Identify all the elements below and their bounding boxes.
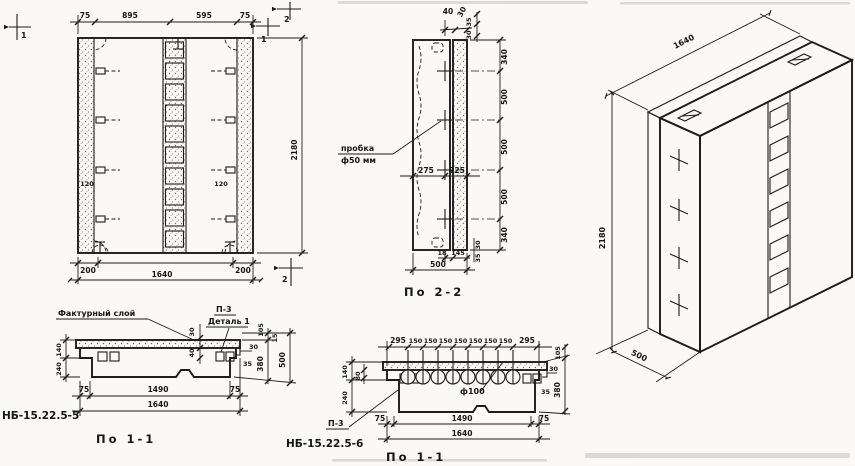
dim-label: 35: [474, 253, 482, 263]
dim-label: 75: [230, 385, 240, 394]
dim-label: 380: [553, 382, 562, 398]
dim-label: 40: [188, 348, 196, 358]
bottom-dim-chain: 75 1490 75 1640: [72, 358, 248, 416]
dim-label: 35: [243, 360, 253, 368]
edge-dims: 30 35 105 380: [539, 344, 570, 415]
top-face: [660, 42, 852, 136]
dim-label: 150: [469, 337, 483, 345]
dim-label: 1640: [672, 33, 696, 51]
dim-label: 500: [500, 139, 509, 155]
dim-label: 35: [541, 388, 551, 396]
dim-label: 240: [55, 362, 63, 376]
view-title: По 1-1: [386, 450, 446, 464]
note-label: П-3: [216, 305, 232, 314]
view-title: По 1-1: [96, 432, 156, 446]
dim-label: 30: [465, 30, 473, 40]
dim-label: 200: [235, 266, 251, 275]
dim-label: 35: [465, 17, 473, 27]
dovetail-strip: [768, 91, 790, 318]
facing-layer: [76, 340, 240, 348]
isometric-view: 1640 2180 500: [596, 13, 852, 382]
dim-label: 1640: [152, 270, 173, 279]
right-rib-texture: [237, 39, 252, 253]
dim-label: 140: [55, 343, 63, 357]
dim-label: 1490: [148, 385, 169, 394]
dim-label: 595: [196, 11, 212, 20]
dim-label: 80: [354, 371, 362, 381]
dim-label: 150: [484, 337, 498, 345]
panel-mark: НБ-15.22.5-5: [2, 410, 79, 422]
section-2-2-view: пробка ф50 мм 40 30 35 30 275 225: [338, 5, 509, 299]
dim-label: 15: [271, 333, 279, 343]
dim-label: 145: [451, 249, 465, 257]
left-rib-texture: [79, 39, 94, 253]
dim-label: 30: [188, 327, 196, 337]
dim-label: 150: [424, 337, 438, 345]
panel-mark: НБ-15.22.5-6: [286, 438, 363, 450]
dim-label: 295: [390, 336, 406, 345]
dim-label: 120: [214, 180, 228, 188]
plug-note: пробка ф50 мм: [338, 121, 441, 165]
front-face: [700, 60, 852, 352]
panel-drawing: 120 120 75 895 595 75 200 200 1640: [0, 0, 855, 466]
note-label: ф100: [460, 387, 485, 396]
depth-dim: 500: [614, 348, 700, 382]
dim-label: 500: [430, 260, 446, 269]
dim-label: 75: [375, 414, 385, 423]
bottom-dims: 18 145 500 30 35: [405, 238, 482, 275]
dim-label: 75: [539, 414, 549, 423]
bottom-dim-chain: 75 1490 75 1640: [375, 414, 550, 443]
mid-dims: 275 225: [400, 166, 480, 179]
dim-label: 75: [240, 11, 250, 20]
dim-label: 150: [409, 337, 423, 345]
section-marks: 1 1 2 2: [9, 2, 303, 286]
dim-label: 240: [341, 391, 349, 405]
void-slots: [98, 352, 234, 361]
left-dim-chain: 140 240 80: [341, 356, 387, 417]
section-mark-label: 1: [21, 31, 27, 40]
front-elevation-view: 120 120 75 895 595 75 200 200 1640: [9, 2, 308, 286]
dim-label: 105: [257, 323, 265, 337]
facing-front-edge: [648, 112, 660, 334]
note-label: Деталь 1: [208, 317, 250, 326]
dim-label: 75: [79, 385, 89, 394]
dim-label: 30: [549, 365, 559, 373]
section-mark-label: 1: [261, 35, 267, 44]
dim-label: 150: [439, 337, 453, 345]
right-dim-chain: 105 15 380 500: [234, 323, 296, 386]
height-dim: 2180: [596, 93, 648, 354]
dim-label: 200: [80, 266, 96, 275]
dim-label: 500: [500, 89, 509, 105]
dim-label: 30: [455, 5, 468, 18]
edge-anchors: 120 120: [80, 68, 235, 222]
top-dims: 40 30 35 30: [440, 5, 480, 42]
dim-label: 295: [519, 336, 535, 345]
scan-noise: [332, 1, 850, 462]
dim-label: 380: [256, 356, 265, 372]
facing-top-edge: [648, 36, 812, 118]
dim-label: 18: [437, 249, 447, 257]
bottom-dim-chain: 200 200 1640: [70, 257, 261, 284]
dim-label: 140: [341, 365, 349, 379]
dim-label: 895: [122, 11, 138, 20]
note-label: Фактурный слой: [58, 309, 135, 318]
dim-label: 2180: [290, 140, 299, 161]
dim-label: 30: [474, 240, 482, 250]
dim-label: 105: [554, 346, 562, 360]
end-face: [660, 118, 700, 352]
section-1-1a-view: Фактурный слой П-3 Деталь 1 30 40 140 24: [2, 305, 296, 446]
facing-layer: [453, 40, 467, 250]
dovetail-key-column: [163, 38, 186, 253]
dim-label: 340: [500, 227, 509, 243]
dim-label: 2180: [598, 226, 607, 249]
view-title: По 2-2: [404, 285, 464, 299]
dim-label: 120: [80, 180, 94, 188]
dim-label: 225: [449, 166, 465, 175]
dim-label: 30: [249, 343, 259, 351]
dim-label: 500: [500, 189, 509, 205]
section-mark-label: 2: [284, 15, 290, 24]
top-dim-chain: 75 895 595 75: [70, 11, 261, 34]
note-label: П-3: [328, 419, 344, 428]
section-1-1b-view: 295 150 150 150 150 150 150 150 295 140 …: [286, 336, 570, 464]
dim-label: 275: [418, 166, 434, 175]
dim-label: 1490: [452, 414, 473, 423]
anchor-crosses: [670, 149, 688, 316]
dim-label: 150: [499, 337, 513, 345]
blueprint-page: 120 120 75 895 595 75 200 200 1640: [0, 0, 855, 466]
dim-label: 340: [500, 49, 509, 65]
section-mark-label: 2: [282, 275, 288, 284]
dim-label: 75: [80, 11, 90, 20]
height-dim: 2180: [257, 35, 308, 256]
dim-label: 1640: [452, 429, 473, 438]
right-dim-chain: 340 500 500 500 340: [470, 37, 509, 253]
dim-label: 40: [443, 7, 453, 16]
dim-label: 500: [278, 352, 287, 368]
facing-note: Фактурный слой: [56, 309, 196, 341]
dim-label: 1640: [148, 400, 169, 409]
note-label: пробка: [341, 143, 374, 153]
dim-label: 150: [454, 337, 468, 345]
note-label: ф50 мм: [341, 156, 376, 165]
